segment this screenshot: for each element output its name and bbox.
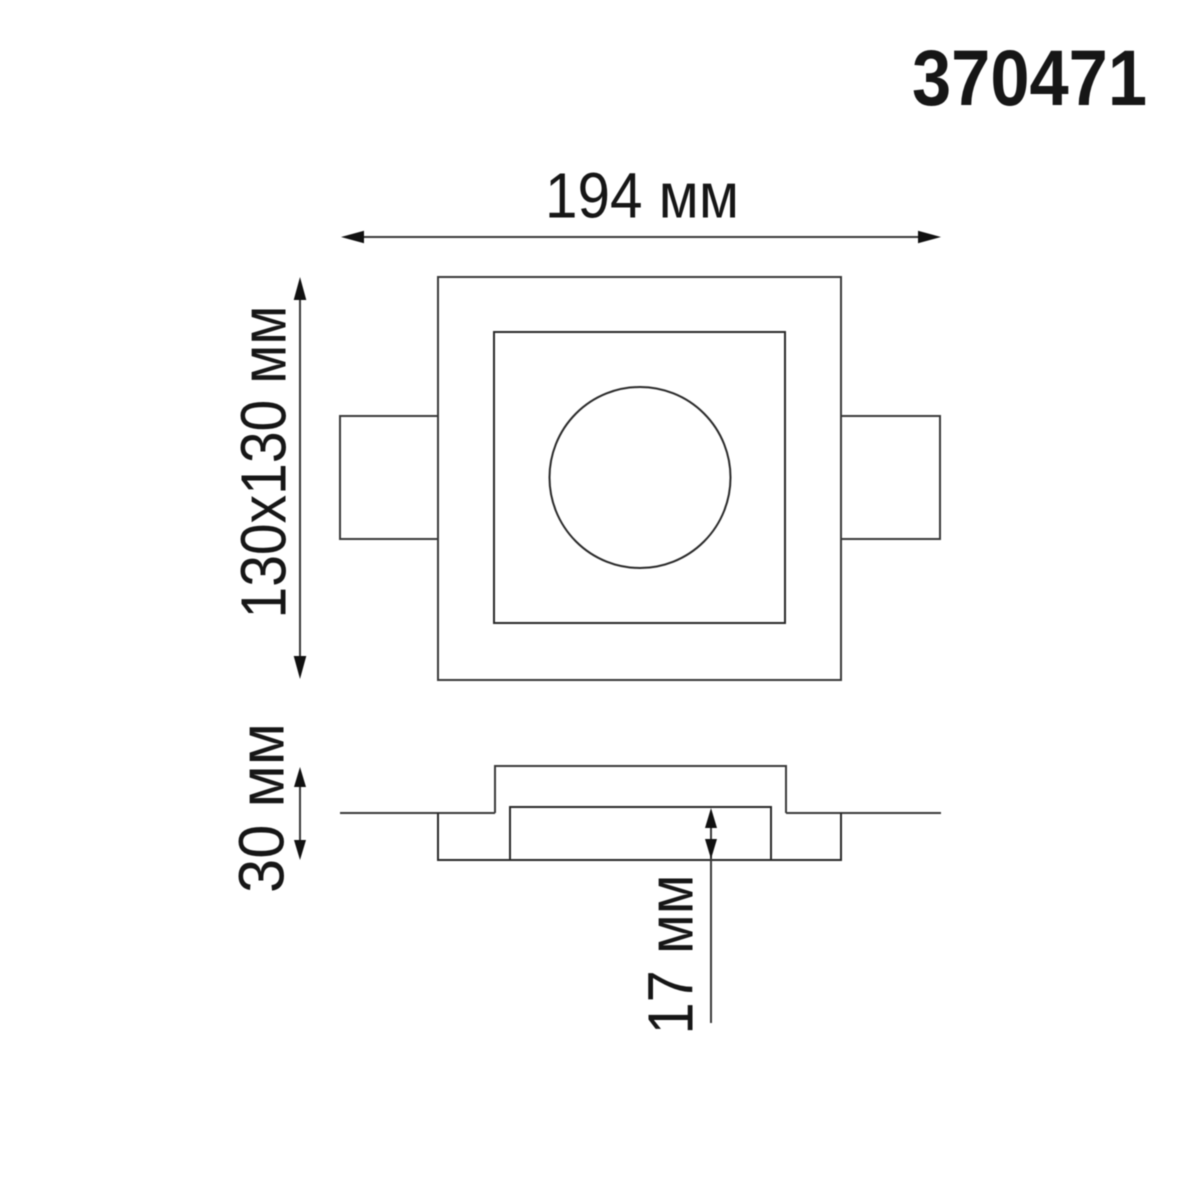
svg-text:30 мм: 30 мм xyxy=(226,723,298,893)
svg-text:17 мм: 17 мм xyxy=(635,875,707,1035)
svg-text:130x130 мм: 130x130 мм xyxy=(228,306,300,619)
svg-text:194 мм: 194 мм xyxy=(545,160,739,232)
svg-text:370471: 370471 xyxy=(912,33,1147,122)
